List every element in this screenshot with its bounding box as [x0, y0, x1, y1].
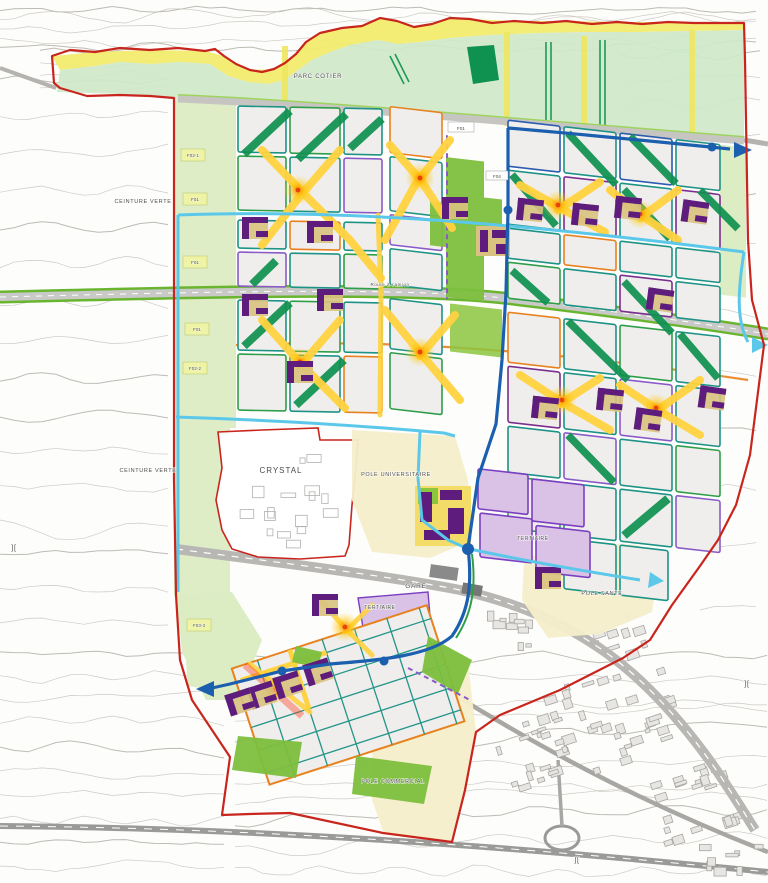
purple-buildings-shape-shape: [456, 211, 468, 217]
existing-city-fabric-shape-shape: [660, 735, 672, 742]
existing-city-fabric-shape-shape: [537, 777, 545, 783]
external-roads-shape: [744, 140, 768, 144]
purple-buildings-shape: [614, 196, 642, 221]
purple-buildings-shape-shape: [610, 403, 623, 410]
crystal-area-shape: [216, 428, 358, 559]
university-campus-shape: [440, 490, 462, 500]
label-f01-c: F01: [193, 327, 201, 332]
contour-lines-shape: [0, 186, 168, 196]
city-grid-west-shape-shape: [344, 158, 382, 213]
existing-city-fabric-shape-shape: [522, 721, 529, 727]
university-campus-shape: [448, 508, 464, 534]
purple-buildings-shape: [681, 199, 710, 224]
contour-lines-shape: [0, 222, 168, 233]
existing-city-fabric-shape-shape: [699, 845, 711, 851]
city-grid-east-shape-shape: [676, 446, 720, 497]
purple-buildings-shape: [287, 361, 313, 383]
existing-city-fabric-shape-shape: [593, 767, 601, 775]
purple-buildings-shape: [317, 289, 343, 311]
existing-city-fabric-shape-shape: [613, 674, 621, 681]
contour-lines-shape: [0, 790, 224, 796]
purple-buildings-shape: [307, 221, 333, 243]
existing-city-fabric-shape-shape: [541, 732, 551, 740]
existing-city-fabric-shape-shape: [562, 689, 571, 699]
contour-lines-shape: [0, 520, 168, 540]
existing-city-fabric-shape-shape: [656, 667, 665, 675]
label-tertiaire-2: TERTIAIRE: [364, 605, 395, 611]
purple-buildings-shape-shape: [326, 608, 338, 614]
contour-lines-shape: [0, 716, 224, 726]
existing-city-fabric-shape-shape: [663, 815, 673, 825]
purple-buildings-shape-shape: [585, 218, 598, 225]
existing-city-fabric-shape-shape: [691, 825, 703, 834]
tertiaire-areas-shape: [532, 479, 584, 527]
purple-buildings-shape-shape: [256, 308, 268, 314]
contour-lines-shape: [0, 373, 168, 384]
transit-stations-shape: [462, 543, 474, 555]
city-grid-west-shape-shape: [344, 302, 382, 353]
purple-buildings-shape: [634, 407, 663, 432]
purple-buildings-shape-shape: [242, 217, 268, 223]
transit-stations-shape: [278, 667, 287, 676]
existing-city-fabric-shape: [487, 611, 532, 651]
city-grid-east-shape-shape: [508, 312, 560, 368]
existing-city-fabric-shape-shape: [537, 727, 546, 733]
university-campus-shape: [492, 230, 506, 238]
city-grid-west-shape-shape: [290, 253, 340, 288]
existing-city-fabric-shape-shape: [487, 611, 494, 621]
masterplan-map: PARC COTIER CEINTURE VERTE CEINTURE VERT…: [0, 0, 768, 883]
existing-city-fabric-shape-shape: [630, 735, 644, 746]
existing-city-fabric-shape-shape: [526, 771, 533, 781]
purple-buildings-shape: [242, 217, 268, 239]
city-grid-east-shape-shape: [620, 325, 672, 381]
existing-city-fabric-shape-shape: [737, 867, 742, 876]
existing-city-fabric: [487, 611, 763, 876]
contour-lines-shape: [700, 606, 756, 610]
bridge-mark-west: ][: [11, 545, 17, 552]
purple-buildings-shape: [698, 385, 727, 410]
city-grid-east-shape-shape: [620, 545, 668, 601]
contour-lines-shape: [0, 585, 168, 592]
masterplan-page: PARC COTIER CEINTURE VERTE CEINTURE VERT…: [0, 0, 768, 883]
existing-city-fabric-shape-shape: [655, 792, 668, 803]
existing-city-fabric-shape-shape: [621, 628, 630, 639]
activity-nodes-shape-shape: [560, 398, 565, 403]
label-f01-b: F01: [191, 260, 199, 265]
yellow-boulevards-shape: [378, 215, 381, 415]
contour-lines-shape: [0, 840, 224, 845]
existing-city-fabric-shape-shape: [614, 732, 621, 739]
activity-nodes-shape-shape: [343, 625, 348, 630]
existing-city-fabric-shape-shape: [518, 627, 528, 633]
existing-city-fabric-shape-shape: [664, 839, 673, 846]
purple-buildings-shape-shape: [256, 231, 268, 237]
purple-buildings-shape-shape: [312, 594, 338, 600]
existing-city-fabric-shape-shape: [672, 834, 685, 845]
existing-city-fabric-shape-shape: [664, 827, 671, 834]
bridge-mark-east: ][: [744, 681, 750, 688]
city-grid-east-shape-shape: [620, 241, 672, 277]
existing-city-fabric-shape-shape: [518, 783, 531, 792]
city-grid-east-shape-shape: [676, 248, 720, 283]
existing-city-fabric-shape-shape: [620, 755, 633, 765]
existing-city-fabric-shape-shape: [726, 853, 738, 857]
label-f01-park: F01: [457, 126, 465, 131]
external-roads-shape: [0, 68, 56, 88]
purple-buildings-shape-shape: [530, 213, 543, 220]
purple-buildings-shape-shape: [628, 211, 641, 218]
existing-city-fabric-shape-shape: [754, 844, 763, 849]
transit-stations-shape: [504, 206, 513, 215]
label-gare: GARE: [405, 583, 427, 590]
city-grid-east-shape-shape: [508, 426, 560, 478]
purple-buildings-shape-shape: [307, 221, 333, 227]
purple-buildings-shape: [571, 203, 599, 228]
existing-city-fabric-shape-shape: [500, 618, 506, 621]
label-pole-sante: POLE SANTE: [581, 591, 622, 597]
contour-lines-shape: [0, 335, 168, 343]
activity-nodes-shape-shape: [296, 188, 301, 193]
purple-buildings-shape: [531, 396, 559, 421]
activity-nodes-shape-shape: [654, 406, 659, 411]
purple-buildings-shape-shape: [535, 567, 561, 573]
existing-city-fabric-shape-shape: [514, 619, 524, 624]
city-grid-east-shape-shape: [620, 439, 672, 491]
existing-city-fabric-shape-shape: [625, 695, 638, 706]
existing-city-fabric-shape-shape: [714, 867, 726, 876]
contour-lines-shape: [0, 256, 168, 267]
university-campus-shape: [480, 230, 488, 252]
label-f03-3: F03-3: [193, 623, 206, 628]
contour-lines-shape: [0, 6, 756, 14]
label-f01-a: F01: [191, 197, 199, 202]
contour-lines-shape: [0, 483, 168, 492]
label-f02-1: F02-1: [187, 153, 200, 158]
existing-city-fabric-shape-shape: [633, 625, 647, 636]
purple-buildings-shape-shape: [321, 235, 333, 241]
tertiaire-areas-shape: [478, 469, 528, 515]
activity-nodes-shape-shape: [418, 176, 423, 181]
purple-buildings-shape: [646, 287, 675, 312]
purple-buildings-shape-shape: [442, 197, 468, 203]
existing-city-fabric-shape-shape: [578, 710, 586, 720]
city-grid-east-shape-shape: [676, 496, 720, 553]
purple-buildings-shape: [516, 198, 544, 223]
city-grid-east-shape-shape: [564, 235, 616, 271]
label-f02-2: F02-2: [189, 366, 202, 371]
transit-stations-shape: [380, 657, 389, 666]
existing-city-fabric-shape-shape: [624, 743, 632, 749]
existing-city-fabric-shape-shape: [511, 781, 518, 787]
existing-city-fabric-shape-shape: [708, 858, 716, 866]
label-parc-cotier: PARC COTIER: [294, 74, 342, 80]
contour-lines-shape: [0, 860, 224, 872]
purple-buildings-shape: [442, 197, 468, 219]
purple-buildings-shape: [535, 567, 561, 589]
existing-city-fabric-shape-shape: [605, 699, 618, 711]
railway-corridor-shape: [429, 564, 459, 581]
existing-city-fabric-shape-shape: [562, 698, 573, 710]
label-pole-commercial: POLE COMMERCIAL: [361, 779, 424, 785]
label-f04: F04: [493, 174, 501, 179]
existing-city-fabric-shape-shape: [645, 728, 650, 733]
contour-lines-shape: [0, 410, 168, 422]
city-grid-west-shape-shape: [238, 106, 286, 153]
label-route-a-camion: Route à camion: [370, 282, 409, 287]
label-ceinture-verte-top: CEINTURE VERTE: [114, 199, 171, 205]
purple-buildings-shape-shape: [301, 375, 313, 381]
city-grid-west-shape-shape: [238, 354, 286, 411]
label-crystal: CRYSTAL: [260, 466, 303, 475]
contour-lines-shape: [0, 144, 168, 157]
purple-buildings-shape: [596, 388, 624, 413]
city-grid-east-shape-shape: [564, 269, 616, 311]
existing-city-fabric-shape-shape: [526, 644, 531, 647]
purple-buildings-shape-shape: [317, 289, 343, 295]
existing-city-fabric-shape-shape: [496, 746, 502, 755]
city-grid-east-shape-shape: [676, 282, 720, 323]
existing-city-fabric-shape-shape: [657, 725, 670, 736]
external-roads-shape: [545, 826, 579, 850]
purple-buildings-shape-shape: [331, 303, 343, 309]
existing-city-fabric-shape-shape: [518, 643, 523, 651]
contour-lines-shape: [0, 550, 168, 555]
purple-buildings-shape-shape: [287, 361, 313, 367]
existing-city-fabric-shape-shape: [650, 780, 662, 789]
label-pole-universitaire: POLE UNIVERSITAIRE: [361, 472, 431, 478]
purple-buildings-shape: [312, 594, 338, 616]
contour-lines-shape: [0, 447, 168, 454]
city-grid-east-shape-shape: [508, 262, 560, 304]
transit-stations-shape: [708, 143, 717, 152]
existing-city-fabric-shape-shape: [582, 680, 594, 687]
label-ceinture-verte-left: CEINTURE VERTE: [119, 468, 176, 474]
purple-buildings-shape: [242, 294, 268, 316]
contour-lines-shape: [0, 741, 224, 758]
bridge-mark-south: ][: [574, 857, 580, 864]
contour-lines-shape: [0, 618, 168, 625]
activity-nodes-shape-shape: [418, 350, 423, 355]
purple-buildings-shape-shape: [545, 411, 558, 418]
existing-city-fabric-shape-shape: [597, 676, 609, 686]
contour-lines-shape: [0, 111, 168, 120]
district-parks-shape: [232, 736, 302, 778]
city-grid-west-shape-shape: [344, 356, 382, 413]
contour-lines-shape: [235, 789, 767, 805]
purple-buildings-shape-shape: [242, 294, 268, 300]
crystal-area: [216, 428, 358, 559]
label-tertiaire-1: TERTIAIRE: [517, 536, 548, 542]
city-grid-east-shape-shape: [508, 228, 560, 264]
contour-lines-shape: [0, 768, 224, 779]
activity-nodes-shape-shape: [556, 203, 561, 208]
existing-city-fabric-shape-shape: [555, 739, 565, 747]
purple-buildings-shape-shape: [549, 581, 561, 587]
garden-grid-park: [450, 304, 502, 358]
